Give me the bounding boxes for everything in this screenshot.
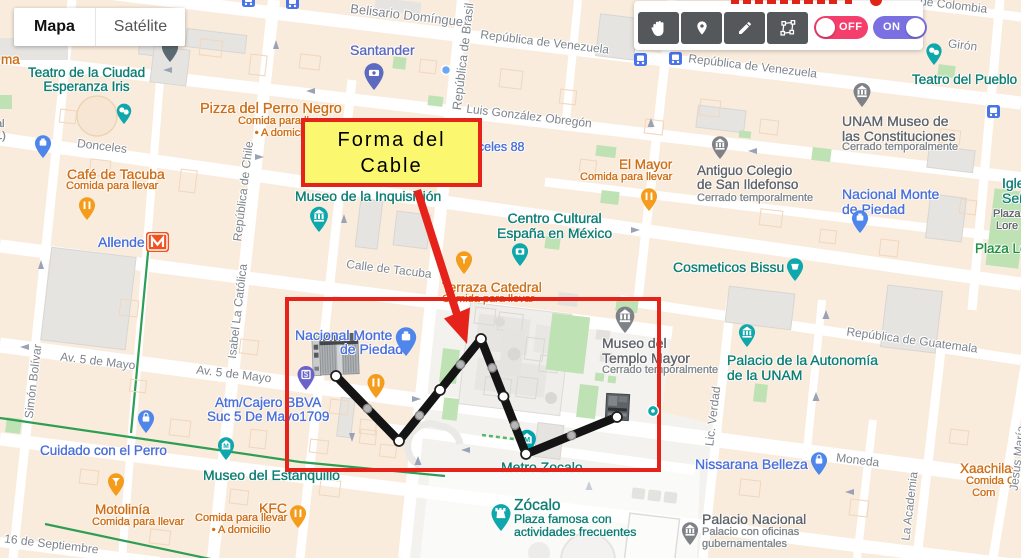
- svg-text:M: M: [223, 443, 229, 450]
- svg-text:$: $: [304, 370, 309, 379]
